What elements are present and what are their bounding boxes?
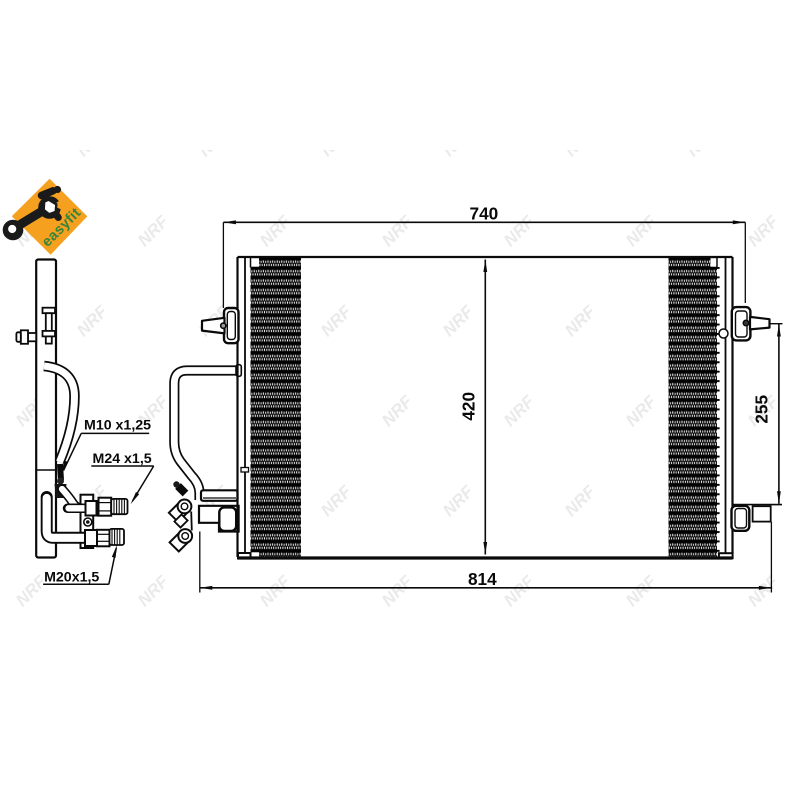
svg-text:M10 x1,25: M10 x1,25 (84, 418, 151, 434)
svg-text:M20x1,5: M20x1,5 (44, 569, 99, 585)
svg-text:420: 420 (459, 392, 479, 421)
svg-text:740: 740 (470, 204, 499, 224)
svg-text:814: 814 (468, 569, 497, 589)
svg-text:255: 255 (752, 395, 772, 424)
svg-text:M24 x1,5: M24 x1,5 (93, 451, 152, 467)
